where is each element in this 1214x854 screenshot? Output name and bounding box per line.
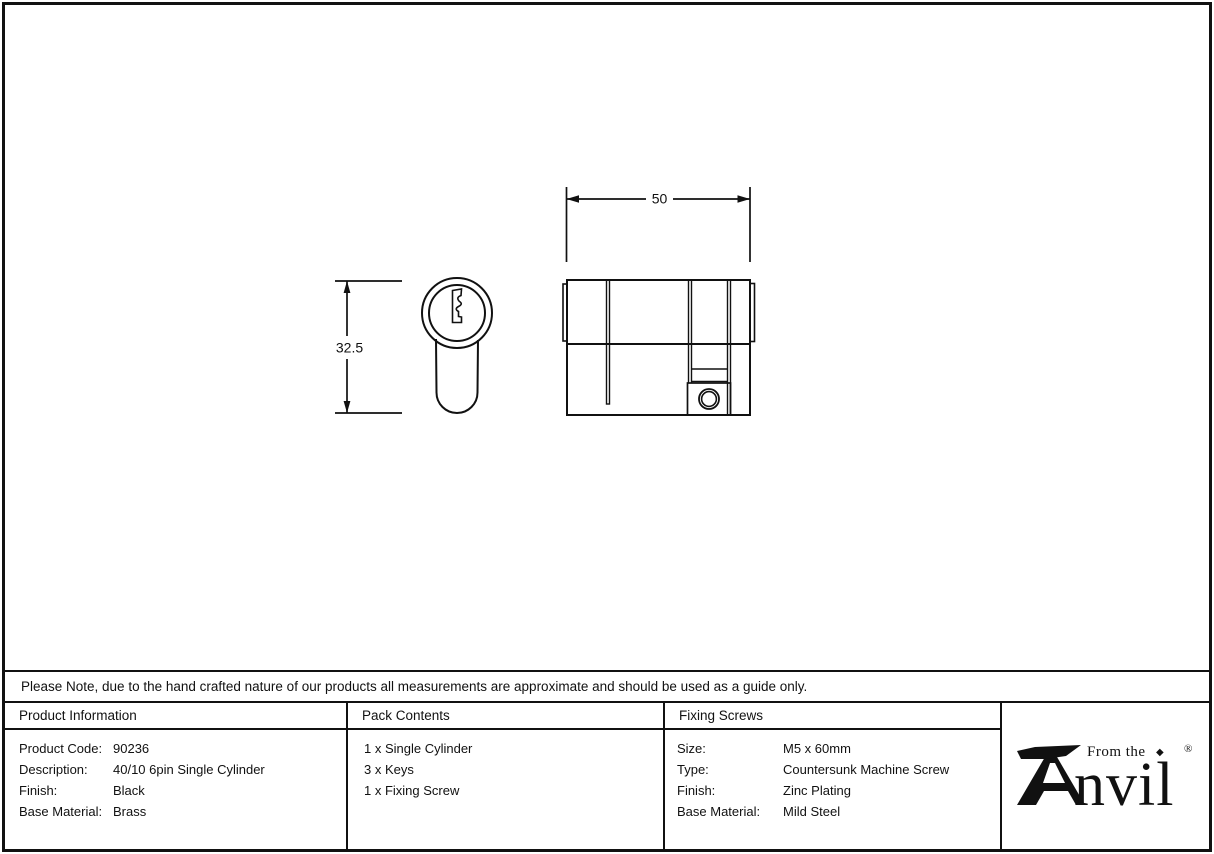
table-row: Type: Countersunk Machine Screw [677, 759, 1000, 780]
spec-label: Description: [19, 759, 113, 780]
fixing-screw-hole-inner [702, 392, 717, 407]
arrowhead-right-icon [738, 195, 751, 203]
logo-tagline: From the [1087, 744, 1146, 760]
spec-value: M5 x 60mm [783, 738, 851, 759]
table-row: Base Material: Brass [19, 801, 346, 822]
cylinder-body-outline [567, 280, 750, 415]
measurement-note: Please Note, due to the hand crafted nat… [5, 670, 1209, 703]
technical-drawing-area: 50 32.5 [5, 5, 1209, 670]
spec-label: Base Material: [677, 801, 783, 822]
list-item: 3 x Keys [364, 759, 663, 780]
spec-value: 90236 [113, 738, 149, 759]
cam-housing [688, 383, 731, 415]
cylinder-front-view [422, 278, 492, 413]
width-dimension-label: 50 [652, 191, 668, 207]
pack-contents-column: Pack Contents 1 x Single Cylinder 3 x Ke… [348, 703, 665, 849]
arrowhead-up-icon [344, 281, 351, 293]
anvil-logo-graphic: nvil From the ◆ ® [1015, 741, 1197, 811]
spec-value: 40/10 6pin Single Cylinder [113, 759, 265, 780]
registered-trademark-icon: ® [1184, 743, 1192, 755]
measurement-note-text: Please Note, due to the hand crafted nat… [21, 679, 807, 694]
height-dimension-label: 32.5 [336, 340, 363, 356]
cylinder-technical-drawing: 50 32.5 [5, 5, 1209, 670]
spec-sheet-page: 50 32.5 Please Note, due to the hand cra… [2, 2, 1212, 852]
spec-value: Black [113, 780, 145, 801]
brand-name-text: nvil [1074, 751, 1174, 811]
spec-label: Product Code: [19, 738, 113, 759]
cylinder-face-outer [422, 278, 492, 348]
pack-contents-header: Pack Contents [348, 703, 663, 730]
cylinder-body-lobe [436, 339, 478, 413]
spec-label: Finish: [19, 780, 113, 801]
list-item: 1 x Fixing Screw [364, 780, 663, 801]
left-end-cap [563, 284, 567, 341]
table-row: Description: 40/10 6pin Single Cylinder [19, 759, 346, 780]
keyway-slot [607, 280, 610, 404]
product-information-header: Product Information [5, 703, 346, 730]
spec-value: Brass [113, 801, 146, 822]
spec-label: Base Material: [19, 801, 113, 822]
from-the-anvil-logo: nvil From the ◆ ® [1002, 703, 1209, 849]
fixing-screws-header: Fixing Screws [665, 703, 1000, 730]
arrowhead-down-icon [344, 401, 351, 413]
spec-label: Finish: [677, 780, 783, 801]
table-row: Product Code: 90236 [19, 738, 346, 759]
list-item: 1 x Single Cylinder [364, 738, 663, 759]
table-row: Base Material: Mild Steel [677, 801, 1000, 822]
spec-value: Zinc Plating [783, 780, 851, 801]
cylinder-face-inner [429, 285, 485, 341]
spec-label: Type: [677, 759, 783, 780]
brand-logo-cell: nvil From the ◆ ® [1002, 703, 1209, 849]
spec-value: Mild Steel [783, 801, 840, 822]
arrowhead-left-icon [567, 195, 580, 203]
product-information-column: Product Information Product Code: 90236 … [5, 703, 348, 849]
spec-table: Product Information Product Code: 90236 … [5, 703, 1209, 849]
keyhole-icon [453, 289, 462, 323]
fixing-screws-column: Fixing Screws Size: M5 x 60mm Type: Coun… [665, 703, 1002, 849]
right-end-cap [750, 284, 755, 342]
table-row: Finish: Zinc Plating [677, 780, 1000, 801]
spec-value: Countersunk Machine Screw [783, 759, 949, 780]
logo-diamond-icon: ◆ [1156, 747, 1164, 758]
cylinder-side-view [563, 280, 755, 415]
table-row: Finish: Black [19, 780, 346, 801]
spec-label: Size: [677, 738, 783, 759]
table-row: Size: M5 x 60mm [677, 738, 1000, 759]
